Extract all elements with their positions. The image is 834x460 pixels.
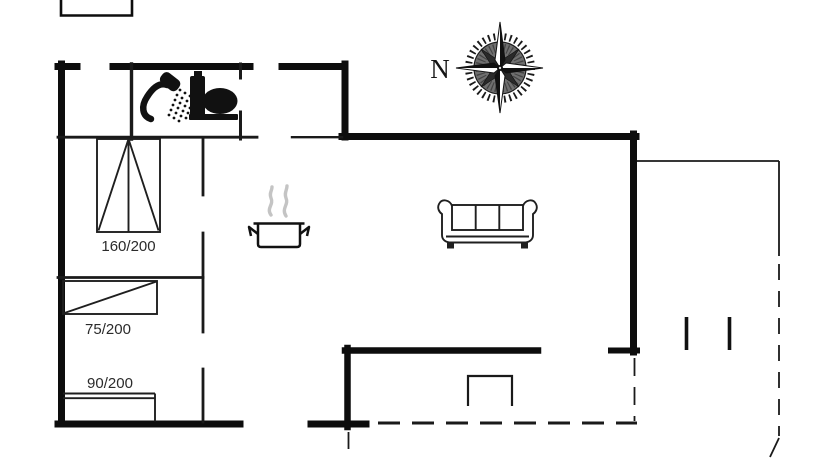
pot-body bbox=[249, 224, 309, 248]
bed-single-90 bbox=[63, 394, 155, 422]
bed-single-75-label: 75/200 bbox=[85, 321, 131, 338]
compass-north-label: N bbox=[430, 54, 450, 84]
terrace-step bbox=[468, 376, 512, 406]
floor-plan-page: 160/200 75/200 90/200 bbox=[0, 0, 834, 460]
steam-lines bbox=[269, 186, 287, 216]
shower-icon bbox=[143, 70, 191, 122]
chimney-outline bbox=[60, 0, 134, 16]
bed-single-75 bbox=[63, 281, 157, 314]
terrace-boundary bbox=[349, 161, 780, 459]
bed-single-90-label: 90/200 bbox=[87, 375, 133, 392]
toilet-icon bbox=[189, 71, 238, 120]
boundary-hook bbox=[770, 438, 779, 457]
shower-spray-dots bbox=[168, 89, 192, 123]
bed-double-160 bbox=[97, 139, 160, 232]
terrace-opening-marks bbox=[687, 317, 730, 350]
floor-plan-drawing: 160/200 75/200 90/200 bbox=[0, 0, 834, 460]
steaming-pot-icon bbox=[249, 186, 309, 247]
bed-double-label: 160/200 bbox=[101, 238, 155, 255]
sofa-icon bbox=[438, 200, 537, 248]
compass-rose-icon: N bbox=[430, 22, 543, 113]
